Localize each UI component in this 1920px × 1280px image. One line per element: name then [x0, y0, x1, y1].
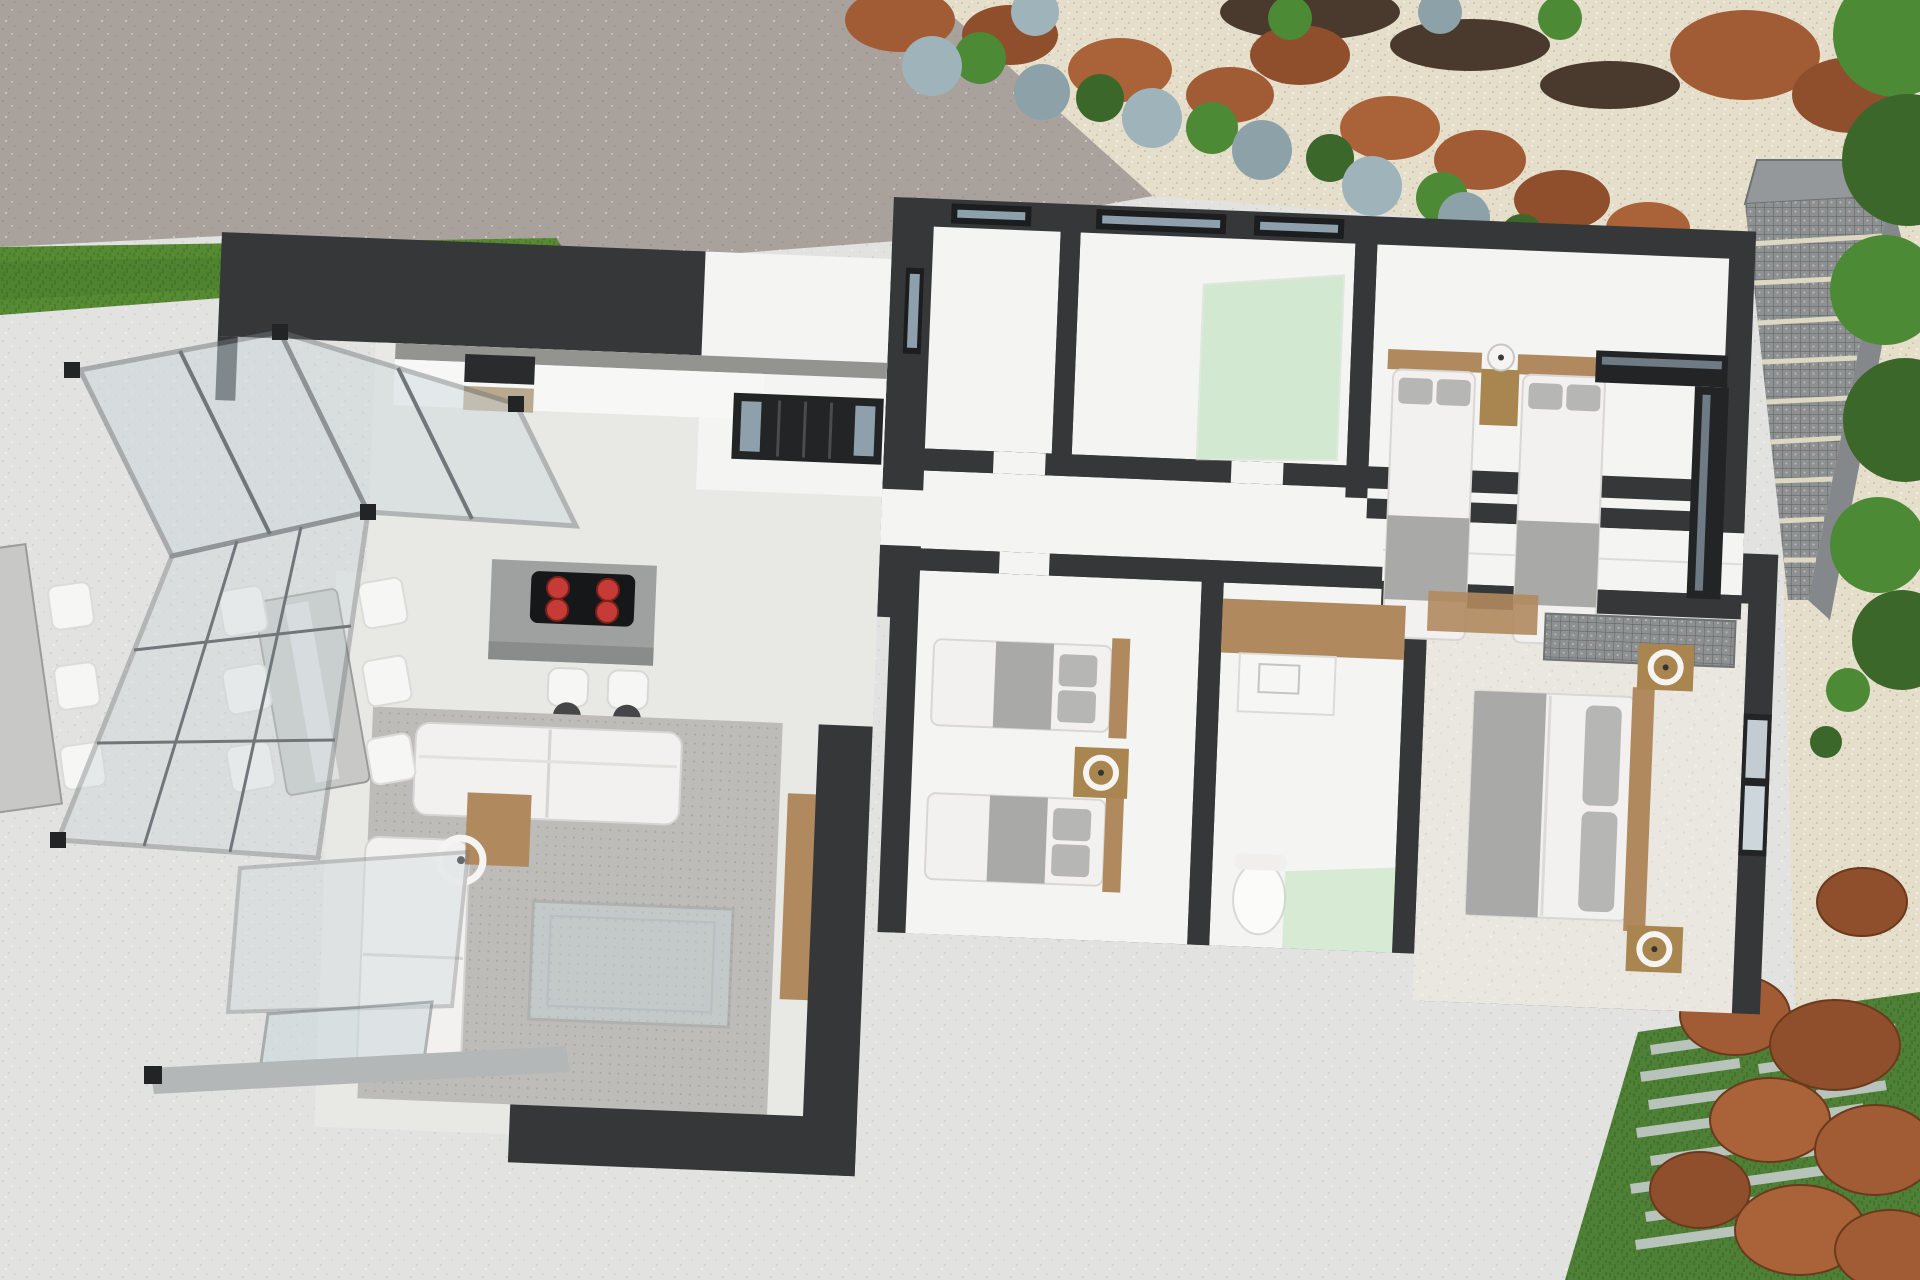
- kids-blanket: [993, 641, 1054, 729]
- dining-chair: [361, 655, 412, 708]
- garden-bush-green: [1186, 102, 1238, 154]
- hall-door-opening: [993, 451, 1046, 475]
- kids-pillow: [1052, 808, 1091, 841]
- plant-tuft: [1826, 668, 1870, 712]
- dining-chair: [365, 733, 416, 786]
- boulder: [1815, 1105, 1920, 1195]
- boulder: [1817, 868, 1907, 936]
- plant-tuft: [1810, 726, 1842, 758]
- garden-bush-gray: [1232, 120, 1292, 180]
- twin-nightstand: [1479, 369, 1519, 426]
- pergola-post-cap: [360, 504, 376, 520]
- garden-bush-gray: [902, 36, 962, 96]
- garden-bush-gray: [1342, 156, 1402, 216]
- terrace-chair: [53, 661, 101, 710]
- master-blanket: [1466, 691, 1547, 918]
- garden-rock: [1340, 96, 1440, 160]
- twin-pillow: [1436, 379, 1471, 406]
- utility-room-floor: [925, 227, 1061, 454]
- cooktop-burner: [547, 576, 570, 599]
- kids-pillow: [1051, 844, 1090, 877]
- hall-door-opening: [1231, 461, 1284, 485]
- twin-blanket: [1514, 520, 1599, 607]
- side-table: [465, 792, 532, 867]
- front-door-sidelight: [740, 401, 762, 452]
- soil-patch: [1390, 19, 1550, 71]
- kids-pillow: [1057, 690, 1096, 723]
- twin-pillow: [1398, 377, 1433, 404]
- cooktop-burner: [546, 598, 569, 621]
- boulder: [1710, 1078, 1830, 1162]
- built-in-oven: [464, 354, 535, 385]
- deck-post-cap: [144, 1066, 162, 1084]
- cooktop-burner: [597, 578, 620, 601]
- toilet-tank: [1234, 853, 1287, 871]
- bath2-vanity: [1238, 653, 1336, 715]
- gabion-step-joint: [1779, 519, 1824, 521]
- master-pillow: [1578, 811, 1618, 912]
- gabion-step-joint: [1775, 479, 1833, 481]
- pergola-post-cap: [64, 362, 80, 378]
- pergola-post-cap: [508, 396, 524, 412]
- floorplan-svg: [0, 0, 1920, 1280]
- garden-bush-green: [954, 32, 1006, 84]
- twin-pillow: [1528, 383, 1563, 410]
- floorplan-render: [0, 0, 1920, 1280]
- boulder: [1770, 1000, 1900, 1090]
- shower-glass-bath1: [1197, 270, 1345, 465]
- wardrobe-dark: [1595, 350, 1728, 387]
- bath2-wood-counter: [1221, 599, 1406, 660]
- garden-bush-green: [1076, 74, 1124, 122]
- soil-patch: [1540, 61, 1680, 109]
- kids-blanket: [987, 795, 1048, 883]
- front-door-sidelight: [854, 406, 876, 457]
- master-window-pane: [1745, 720, 1767, 779]
- boulder: [1650, 1152, 1750, 1228]
- garden-bush-gray: [1122, 88, 1182, 148]
- shower-glass-bath2: [1282, 863, 1395, 952]
- garden-bush-gray: [1014, 64, 1070, 120]
- cooktop-burner: [596, 600, 619, 623]
- pergola-post-cap: [272, 324, 288, 340]
- pergola-low-pane: [228, 852, 468, 1012]
- twin-pillow: [1566, 384, 1601, 411]
- master-window-pane: [1742, 786, 1765, 851]
- kids-bedroom-floor: [905, 570, 1201, 944]
- connector-passage: [880, 489, 930, 547]
- dining-chair: [357, 577, 408, 630]
- kids-pillow: [1058, 654, 1097, 687]
- hall-door-opening: [999, 552, 1050, 576]
- bar-stool: [547, 668, 588, 708]
- master-pillow: [1582, 705, 1622, 806]
- hall-wood-floor: [1427, 591, 1539, 635]
- pergola-post-cap: [50, 832, 66, 848]
- twin-blanket: [1384, 515, 1469, 602]
- induction-cooktop: [530, 571, 636, 627]
- terrace-chair: [47, 581, 95, 630]
- bar-stool: [607, 670, 648, 710]
